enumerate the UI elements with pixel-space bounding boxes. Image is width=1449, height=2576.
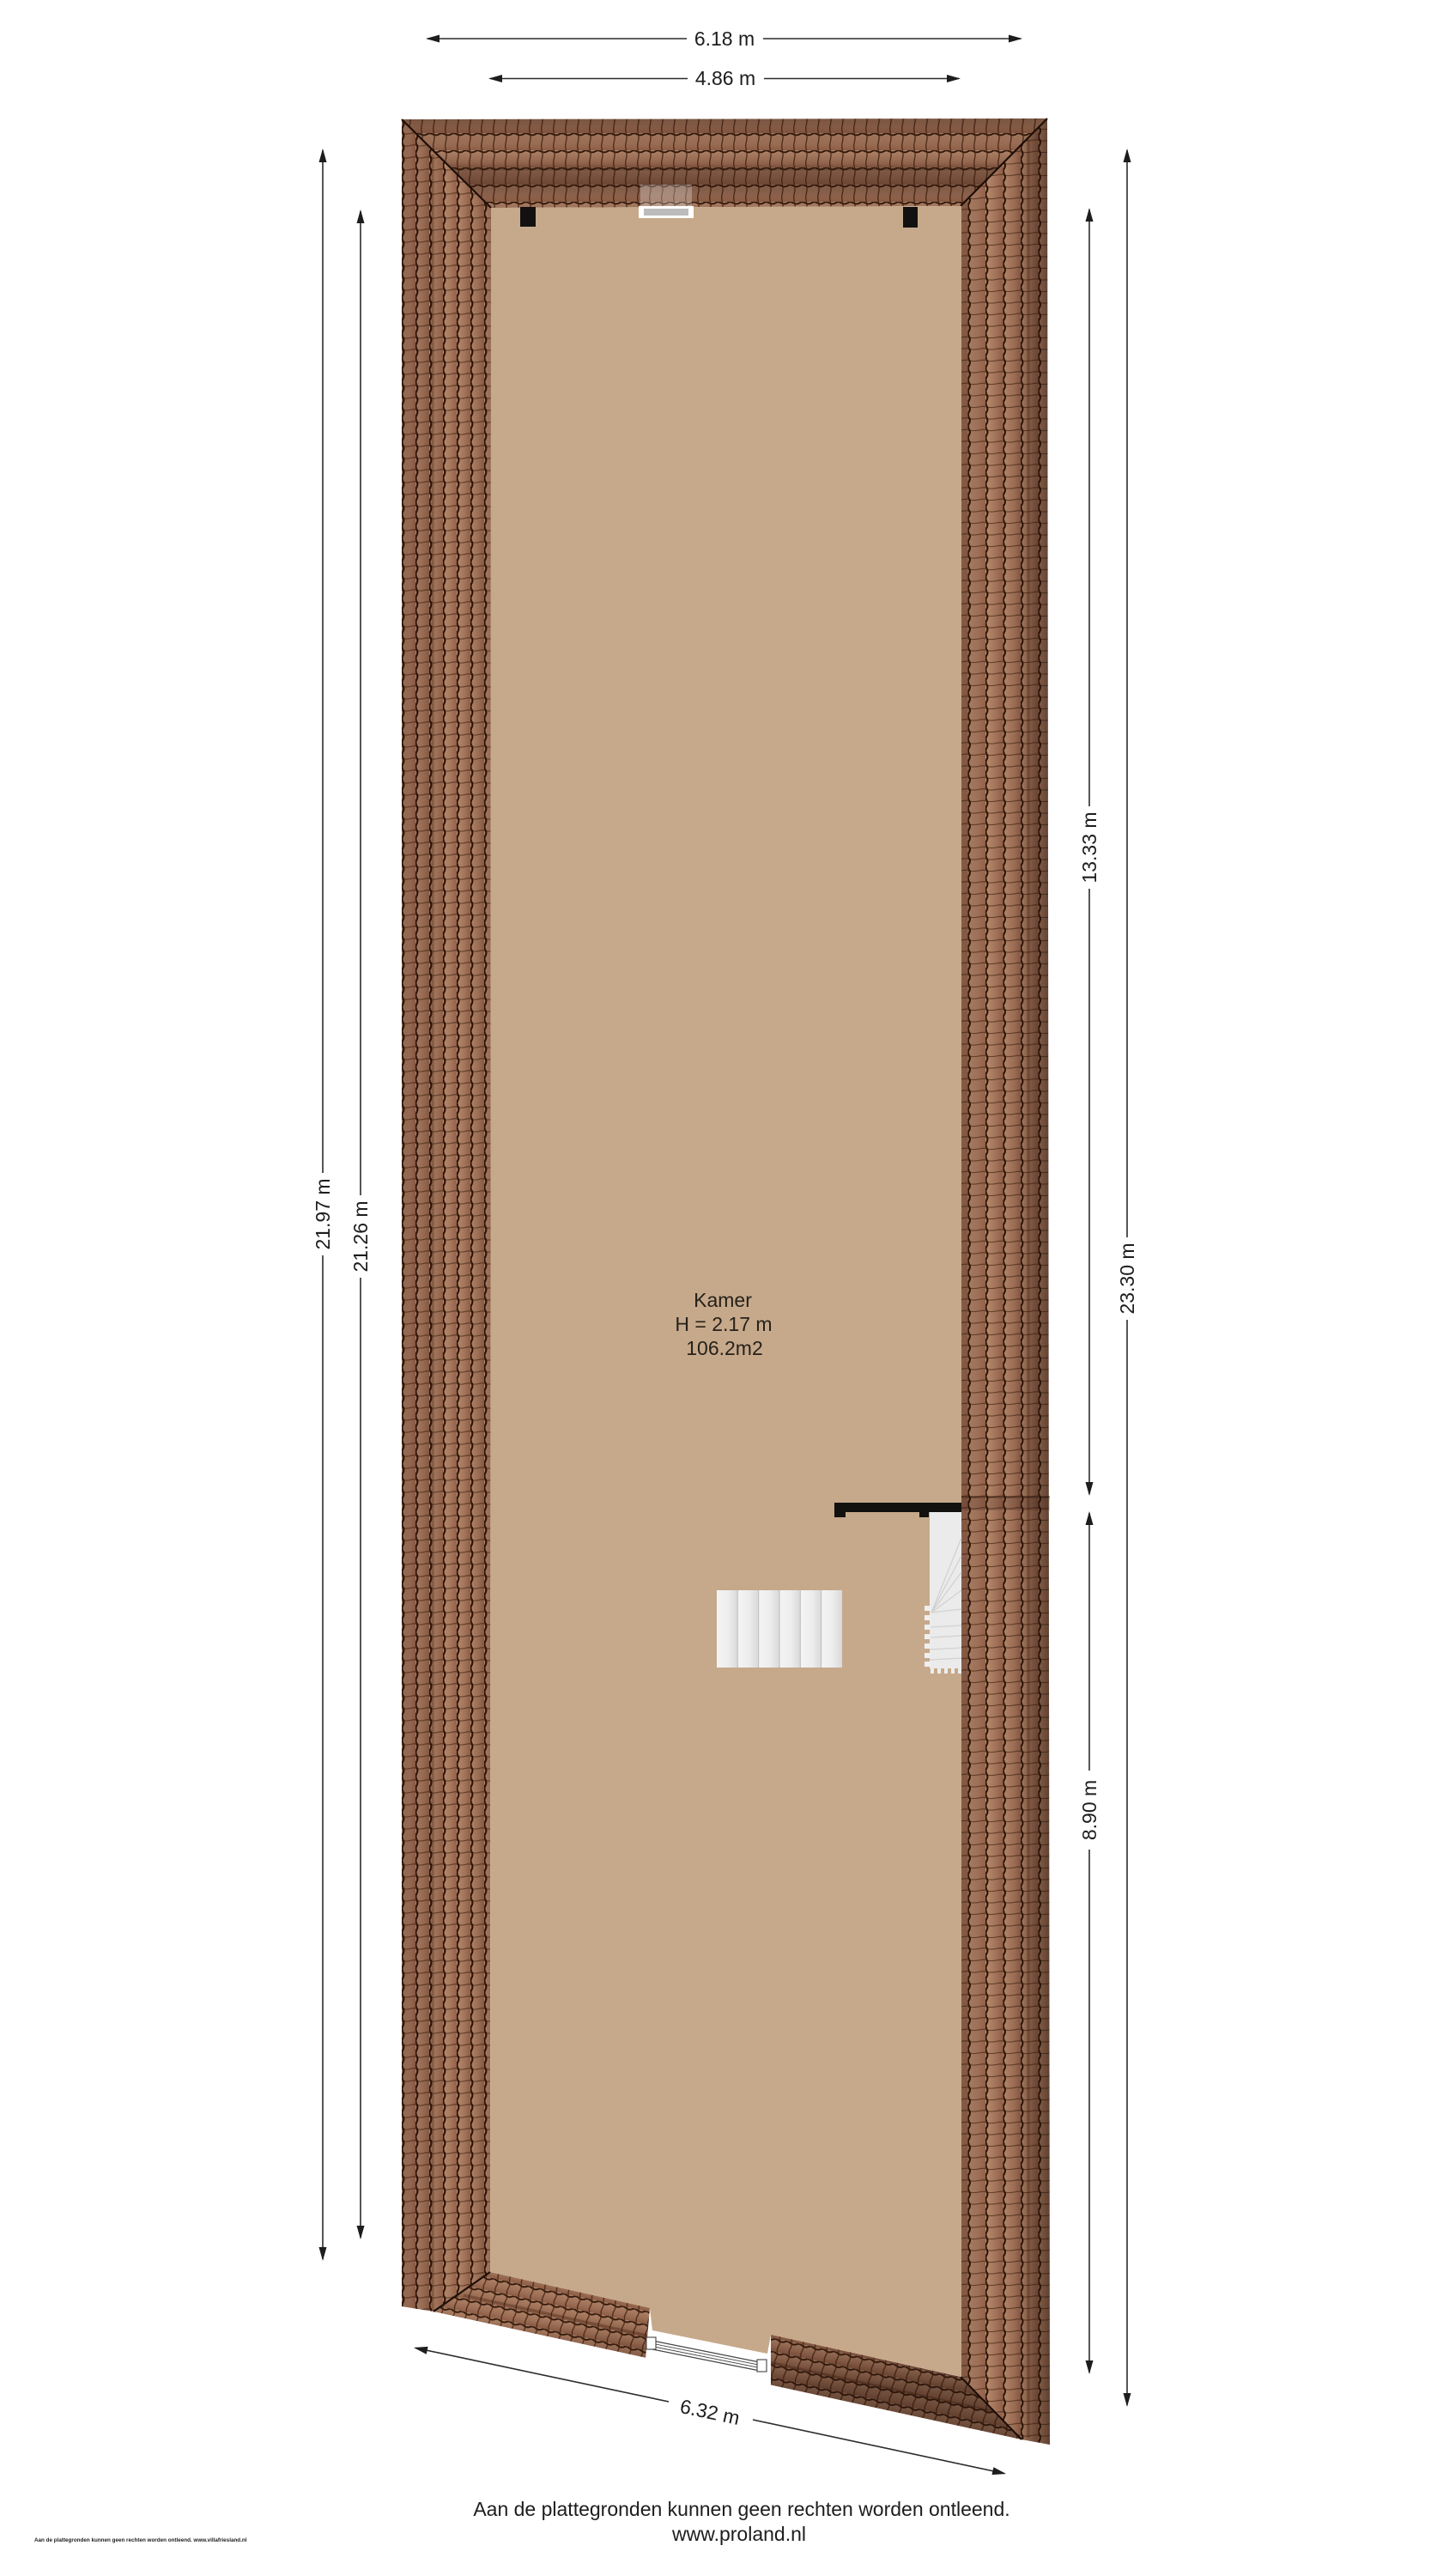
svg-text:4.86 m: 4.86 m [695,67,755,89]
svg-text:www.proland.nl: www.proland.nl [671,2523,806,2545]
svg-text:6.32 m: 6.32 m [678,2395,742,2429]
svg-text:23.30 m: 23.30 m [1116,1242,1138,1314]
svg-text:106.2m2: 106.2m2 [686,1337,763,1359]
svg-text:Aan de plattegronden kunnen ge: Aan de plattegronden kunnen geen rechten… [34,2537,247,2543]
svg-text:21.26 m: 21.26 m [349,1200,372,1272]
svg-text:13.33 m: 13.33 m [1078,811,1100,883]
svg-text:H = 2.17 m: H = 2.17 m [675,1313,772,1335]
svg-text:Aan de plattegronden kunnen ge: Aan de plattegronden kunnen geen rechten… [473,2498,1009,2520]
svg-text:21.97 m: 21.97 m [312,1178,334,1249]
svg-text:8.90 m: 8.90 m [1078,1780,1100,1840]
svg-text:6.18 m: 6.18 m [694,27,755,50]
svg-text:Kamer: Kamer [694,1289,752,1311]
